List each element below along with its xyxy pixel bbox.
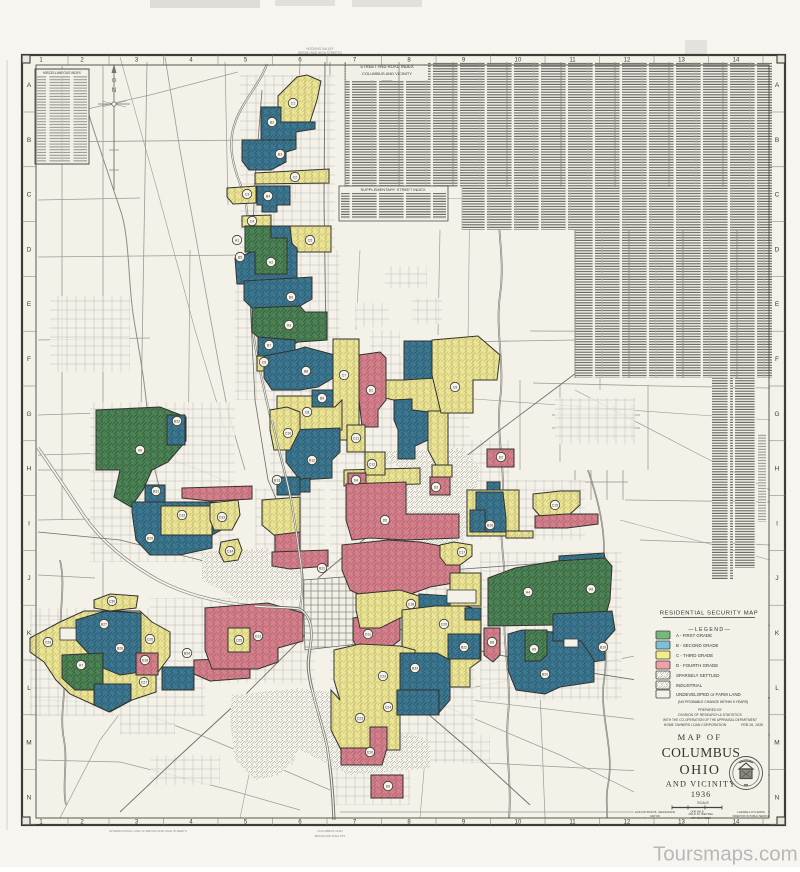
svg-text:C - THIRD GRADE: C - THIRD GRADE (676, 653, 713, 658)
svg-text:N: N (27, 794, 32, 801)
svg-text:A8: A8 (589, 587, 593, 591)
svg-text:E: E (775, 301, 780, 308)
svg-text:B27: B27 (101, 622, 107, 626)
svg-text:C26: C26 (147, 637, 153, 641)
svg-text:F: F (775, 356, 779, 363)
svg-text:SUPPLEMENTARY STREET INDEX: SUPPLEMENTARY STREET INDEX (360, 187, 425, 192)
svg-text:C8: C8 (305, 410, 310, 414)
svg-text:F: F (27, 356, 31, 363)
svg-text:A7: A7 (79, 663, 83, 667)
svg-text:C: C (775, 192, 780, 199)
svg-text:G: G (774, 411, 779, 418)
svg-text:E: E (27, 301, 32, 308)
svg-text:C11: C11 (353, 436, 359, 440)
svg-text:B19: B19 (600, 645, 606, 649)
svg-text:J: J (27, 575, 30, 582)
svg-text:12: 12 (624, 820, 631, 826)
svg-text:PREPARED BY: PREPARED BY (698, 708, 723, 712)
svg-text:B29: B29 (147, 536, 153, 540)
svg-text:DIVISION OF RESEARCH & STATIST: DIVISION OF RESEARCH & STATISTICS (678, 713, 742, 717)
svg-text:1936: 1936 (691, 790, 711, 799)
svg-text:C27: C27 (141, 680, 147, 684)
svg-text:SPARSELY SETTLED: SPARSELY SETTLED (676, 673, 719, 678)
svg-text:B13: B13 (274, 478, 280, 482)
svg-text:L: L (27, 685, 31, 692)
svg-text:SCALE: SCALE (697, 801, 709, 805)
svg-text:M: M (26, 740, 31, 747)
svg-text:B16: B16 (487, 523, 493, 527)
svg-text:C7: C7 (342, 373, 347, 377)
svg-text:14: 14 (733, 58, 740, 64)
svg-text:B31: B31 (153, 489, 159, 493)
svg-text:G: G (26, 411, 31, 418)
svg-text:C20: C20 (441, 622, 447, 626)
svg-text:H: H (27, 466, 32, 473)
svg-text:MAP OF: MAP OF (678, 732, 723, 742)
svg-text:D18: D18 (142, 658, 148, 662)
svg-text:B7: B7 (267, 343, 271, 347)
svg-text:MAYOR: MAYOR (650, 814, 659, 818)
svg-text:J: J (775, 575, 778, 582)
svg-text:▬: ▬ (744, 782, 748, 787)
svg-text:10: 10 (515, 820, 522, 826)
svg-text:Toursmaps.com: Toursmaps.com (653, 843, 798, 866)
svg-text:AND VICINITY: AND VICINITY (666, 780, 736, 789)
svg-text:C9: C9 (453, 385, 458, 389)
svg-text:INTERNATIONAL LINE OF BROAD AN: INTERNATIONAL LINE OF BROAD AND HIGH STR… (109, 829, 187, 833)
svg-text:C4: C4 (250, 219, 255, 223)
svg-text:I: I (776, 520, 778, 527)
svg-text:WITH THE CO-OPERATION OF THE A: WITH THE CO-OPERATION OF THE APPRAISAL D… (663, 718, 757, 722)
svg-text:10: 10 (515, 58, 522, 64)
svg-text:HON MYRON B. GESSAMAN: HON MYRON B. GESSAMAN (635, 810, 675, 814)
svg-text:A5: A5 (532, 647, 536, 651)
svg-text:D8: D8 (490, 640, 495, 644)
svg-text:C18: C18 (408, 602, 414, 606)
svg-text:D9: D9 (386, 784, 391, 788)
svg-text:C34: C34 (227, 549, 233, 553)
svg-text:14: 14 (733, 820, 740, 826)
svg-text:H: H (775, 466, 780, 473)
svg-text:K: K (27, 630, 32, 637)
svg-text:DIRECTOR OF PUBLIC SERVICE: DIRECTOR OF PUBLIC SERVICE (733, 815, 770, 818)
svg-text:K: K (775, 630, 780, 637)
svg-text:HOME OWNERS LOAN CORPORATION: HOME OWNERS LOAN CORPORATION (664, 723, 727, 727)
svg-text:FEB 16, 1936: FEB 16, 1936 (741, 723, 763, 727)
svg-text:B11: B11 (319, 566, 325, 570)
svg-text:C33: C33 (219, 515, 225, 519)
svg-text:A4: A4 (526, 590, 530, 594)
svg-text:13: 13 (678, 58, 685, 64)
svg-text:A: A (775, 82, 780, 89)
svg-text:C2: C2 (293, 175, 298, 179)
svg-text:B32: B32 (174, 419, 180, 423)
svg-text:A1: A1 (235, 238, 239, 242)
svg-text:C17: C17 (459, 550, 465, 554)
svg-text:A2: A2 (269, 260, 273, 264)
svg-text:C10: C10 (285, 431, 291, 435)
svg-text:C25: C25 (236, 638, 242, 642)
svg-text:C32: C32 (179, 513, 185, 517)
svg-text:COLUMBUS OHIO: COLUMBUS OHIO (317, 829, 343, 833)
svg-text:A: A (27, 82, 32, 89)
svg-text:D4: D4 (354, 478, 359, 482)
svg-text:N: N (112, 87, 117, 94)
svg-text:C24: C24 (385, 705, 391, 709)
svg-text:C22: C22 (380, 674, 386, 678)
svg-text:B: B (775, 137, 779, 144)
svg-text:OHIO: OHIO (680, 763, 721, 778)
svg-text:C12: C12 (369, 462, 375, 466)
svg-text:B: B (27, 137, 31, 144)
svg-text:D11: D11 (365, 632, 371, 636)
svg-text:N: N (775, 794, 780, 801)
svg-text:B5: B5 (238, 255, 242, 259)
svg-text:B6: B6 (289, 295, 293, 299)
svg-text:11: 11 (569, 820, 576, 826)
svg-text:B4: B4 (266, 194, 270, 198)
svg-text:D: D (27, 246, 32, 253)
svg-text:RESIDENTIAL SECURITY MAP: RESIDENTIAL SECURITY MAP (660, 611, 759, 617)
svg-text:CITY ENGINEER: CITY ENGINEER (691, 816, 711, 820)
svg-text:UNDEVELOPED or FARM LAND: UNDEVELOPED or FARM LAND (676, 692, 741, 697)
svg-text:LLEWELLYN LEWIS: LLEWELLYN LEWIS (737, 810, 765, 814)
svg-text:C29: C29 (45, 640, 51, 644)
svg-text:B9: B9 (320, 396, 324, 400)
svg-text:INDUSTRIAL: INDUSTRIAL (676, 683, 703, 688)
svg-text:I: I (28, 520, 30, 527)
svg-text:A3: A3 (287, 323, 291, 327)
svg-text:D12: D12 (255, 634, 261, 638)
svg-text:COLUMBUS AND VICINITY: COLUMBUS AND VICINITY (362, 71, 412, 76)
svg-text:12: 12 (624, 58, 631, 64)
svg-text:C5: C5 (308, 238, 313, 242)
svg-text:C30: C30 (109, 599, 115, 603)
svg-text:B28: B28 (117, 646, 123, 650)
svg-text:L: L (775, 685, 779, 692)
svg-text:A - FIRST GRADE: A - FIRST GRADE (676, 633, 712, 638)
svg-text:BROAD AND HIGH STS: BROAD AND HIGH STS (315, 834, 346, 838)
svg-text:B22: B22 (461, 645, 467, 649)
svg-text:COLUMBUS: COLUMBUS (662, 745, 741, 760)
svg-text:D1: D1 (369, 388, 374, 392)
svg-text:11: 11 (569, 58, 576, 64)
svg-text:M: M (774, 740, 779, 747)
svg-text:C15: C15 (552, 503, 558, 507)
svg-text:D: D (775, 246, 780, 253)
svg-text:D - FOURTH GRADE: D - FOURTH GRADE (676, 663, 718, 668)
svg-text:B8: B8 (304, 369, 308, 373)
svg-text:C3: C3 (245, 192, 250, 196)
svg-text:B20: B20 (542, 672, 548, 676)
svg-text:C1: C1 (291, 101, 296, 105)
svg-text:C: C (27, 192, 32, 199)
svg-text:PAUL M. WETZEL: PAUL M. WETZEL (689, 812, 714, 816)
svg-text:B3: B3 (278, 152, 282, 156)
svg-text:MISCELLANEOUS INDEX: MISCELLANEOUS INDEX (43, 71, 82, 75)
svg-text:13: 13 (678, 820, 685, 826)
svg-text:D3: D3 (434, 485, 439, 489)
svg-text:C23: C23 (357, 716, 363, 720)
svg-text:B2: B2 (270, 120, 274, 124)
svg-text:B12: B12 (309, 458, 315, 462)
svg-text:B33: B33 (412, 666, 418, 670)
svg-text:B - SECOND GRADE: B - SECOND GRADE (676, 643, 719, 648)
svg-text:B24: B24 (184, 651, 190, 655)
svg-text:(NO PROBABLE CHANGE WITHIN 5 Y: (NO PROBABLE CHANGE WITHIN 5 YEARS) (678, 700, 748, 704)
svg-text:D10: D10 (367, 750, 373, 754)
svg-text:A6: A6 (138, 448, 142, 452)
svg-text:D5: D5 (383, 518, 388, 522)
svg-text:D2: D2 (499, 455, 504, 459)
svg-text:———: ——— (382, 78, 393, 82)
svg-text:C6: C6 (262, 360, 267, 364)
